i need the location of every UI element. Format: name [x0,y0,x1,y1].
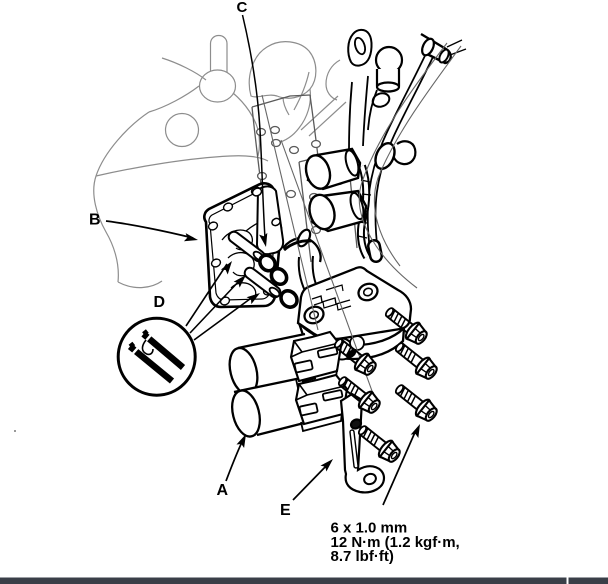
svg-text:8.7 lbf·ft): 8.7 lbf·ft) [331,548,394,565]
svg-text:A: A [217,482,229,499]
svg-text:D: D [154,294,166,311]
svg-text:C: C [237,0,248,16]
svg-text:B: B [89,212,101,229]
svg-text:E: E [280,502,291,519]
